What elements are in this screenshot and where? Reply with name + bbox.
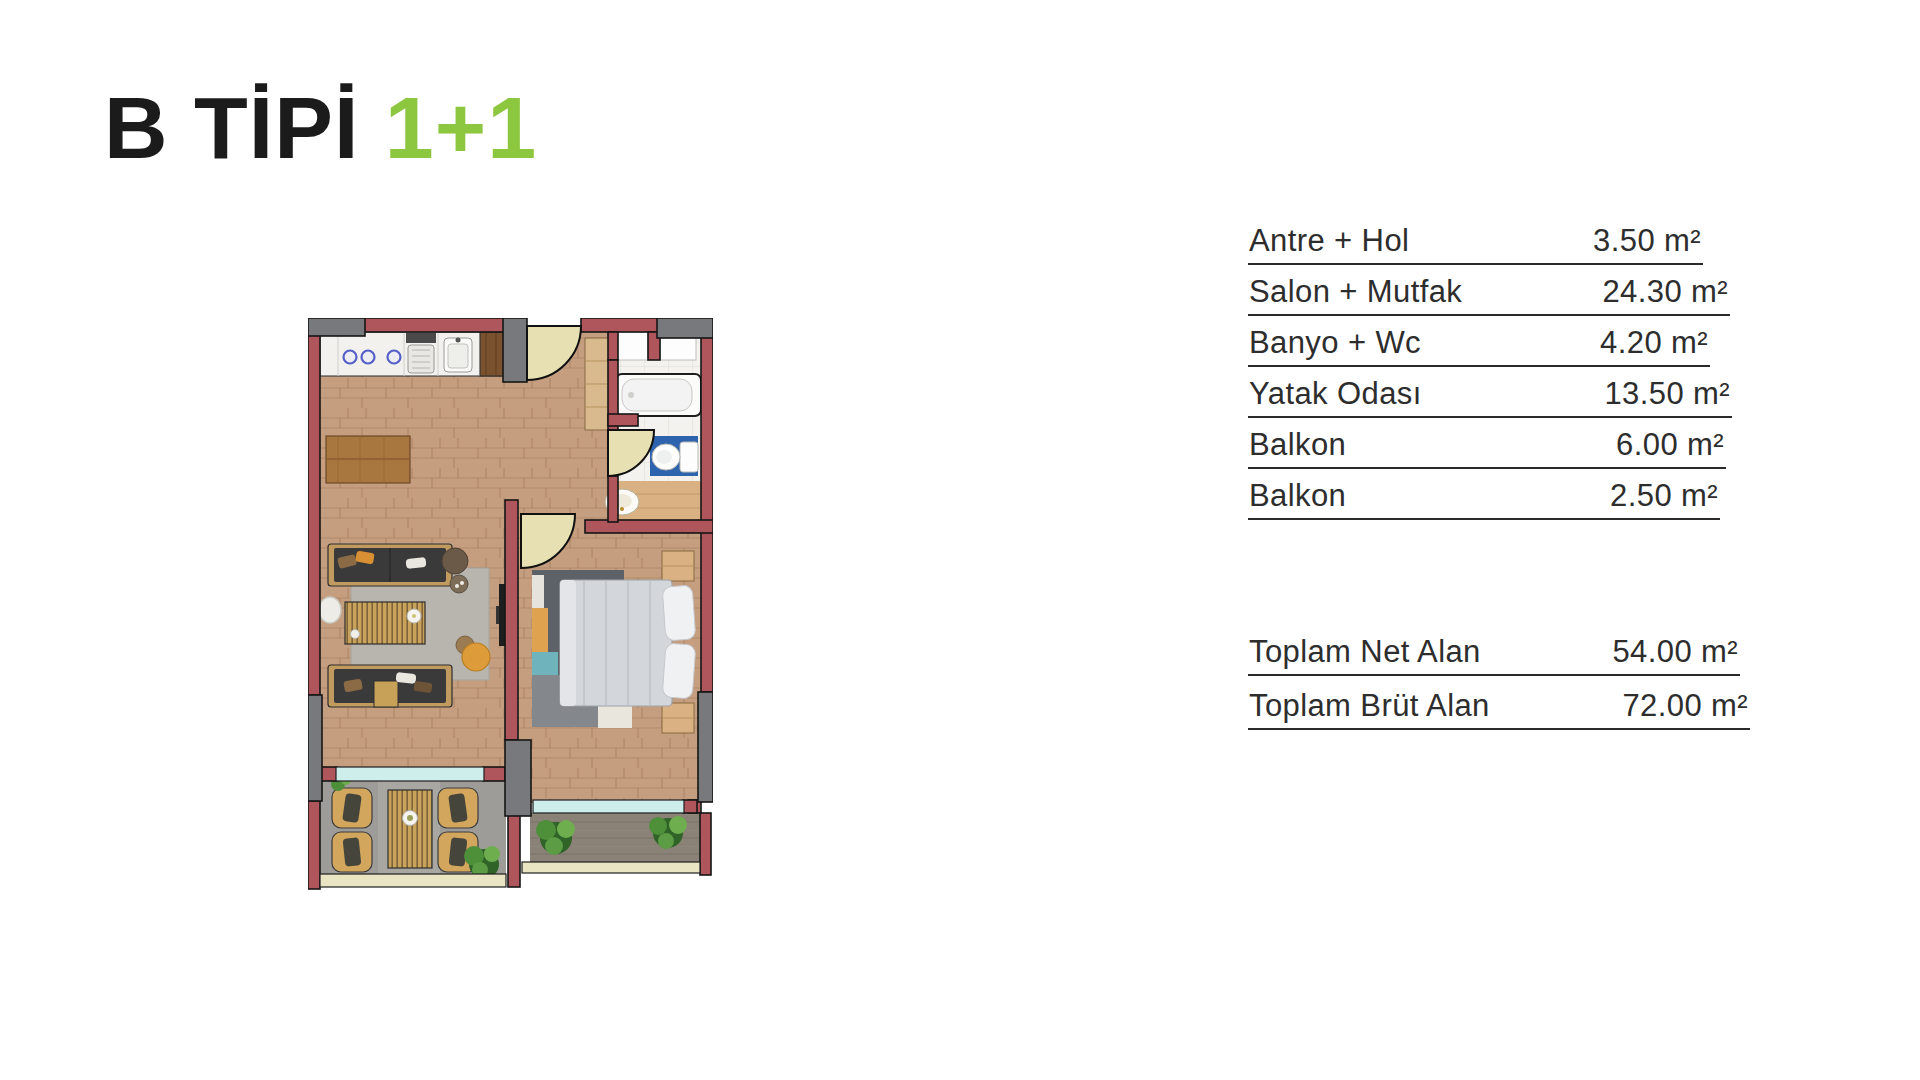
table-row: Toplam Net Alan 54.00 m² [1248,622,1740,676]
totals-table: Toplam Net Alan 54.00 m² Toplam Brüt Ala… [1248,622,1750,730]
bedroom-furniture [532,551,696,733]
room-label: Balkon [1249,478,1346,514]
total-label: Toplam Brüt Alan [1249,688,1490,724]
table-row: Banyo + Wc 4.20 m² [1248,316,1710,367]
table-row: Antre + Hol 3.50 m² [1248,214,1703,265]
total-area: 72.00 m² [1622,688,1748,724]
total-area: 54.00 m² [1612,634,1738,670]
table-row: Balkon 6.00 m² [1248,418,1726,469]
room-area: 4.20 m² [1600,325,1708,361]
room-label: Balkon [1249,427,1346,463]
title-room-count: 1+1 [385,78,537,177]
area-table: Antre + Hol 3.50 m² Salon + Mutfak 24.30… [1248,214,1732,520]
room-area: 3.50 m² [1593,223,1701,259]
room-area: 13.50 m² [1604,376,1730,412]
total-label: Toplam Net Alan [1249,634,1481,670]
floor-plan [308,318,713,893]
room-label: Salon + Mutfak [1249,274,1462,310]
kitchen-counter [320,332,508,376]
hall-wardrobe [585,338,609,430]
dining-table [326,436,410,483]
table-row: Balkon 2.50 m² [1248,469,1720,520]
floor-plan-image [308,318,713,893]
room-area: 6.00 m² [1616,427,1724,463]
table-row: Toplam Brüt Alan 72.00 m² [1248,676,1750,730]
room-area: 24.30 m² [1602,274,1728,310]
room-label: Banyo + Wc [1249,325,1421,361]
table-row: Yatak Odası 13.50 m² [1248,367,1732,418]
room-label: Antre + Hol [1249,223,1409,259]
page-title: B TİPİ 1+1 [104,84,537,172]
room-area: 2.50 m² [1610,478,1718,514]
title-type-label: B TİPİ [104,78,359,177]
table-row: Salon + Mutfak 24.30 m² [1248,265,1730,316]
room-label: Yatak Odası [1249,376,1422,412]
